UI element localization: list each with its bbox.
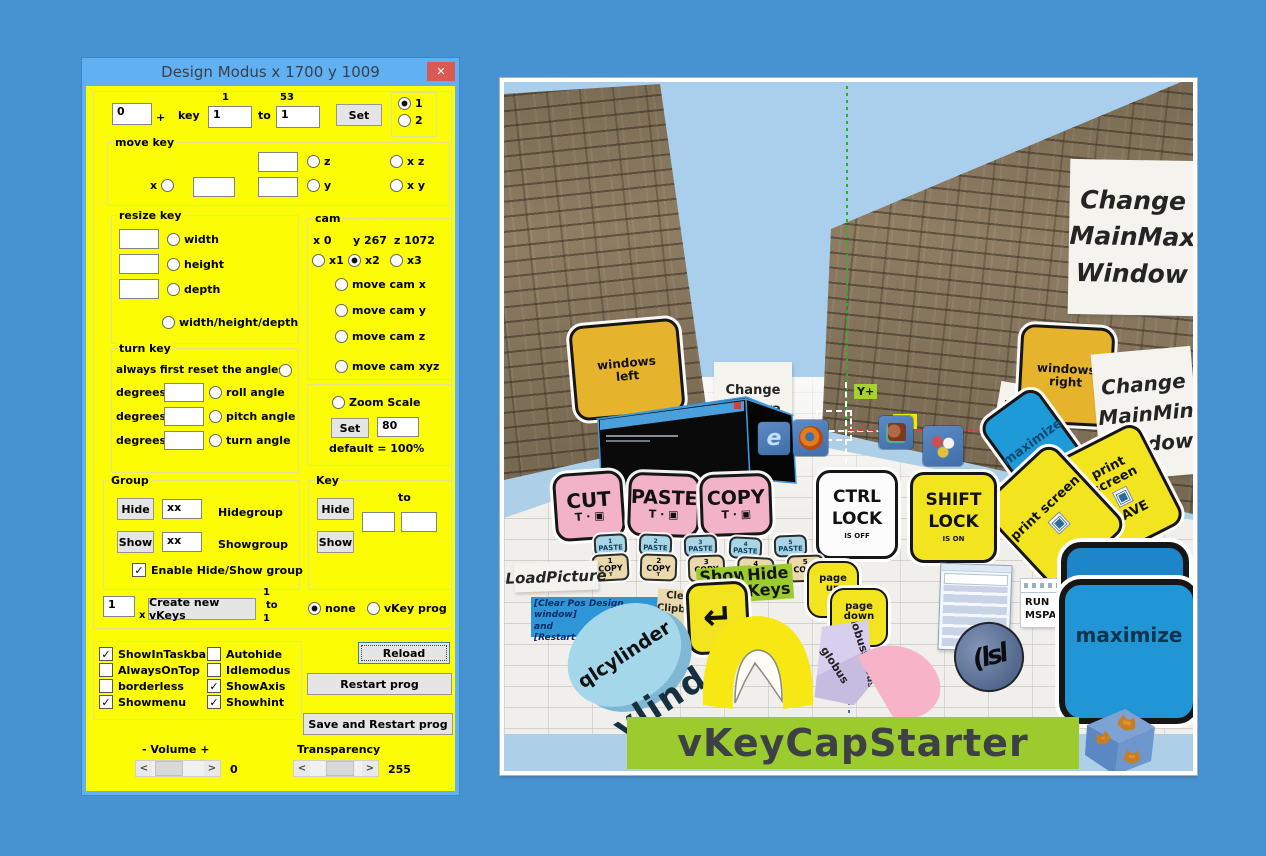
reset-angles-label: always first reset the angles bbox=[116, 364, 284, 376]
degrees-label-3: degrees bbox=[116, 434, 166, 447]
vkey-3d-viewport: Y+ X+ Change MainMax Window windows left… bbox=[500, 78, 1197, 775]
scene[interactable]: Y+ X+ Change MainMax Window windows left… bbox=[504, 82, 1193, 771]
app-cube-2-icon bbox=[929, 432, 957, 460]
resize-depth-input[interactable] bbox=[119, 279, 159, 299]
radio-move-xy[interactable]: x y bbox=[390, 179, 425, 192]
dialog-body: 0 + key 1 1 to 53 1 Set 1 2 move key z x… bbox=[86, 86, 455, 791]
transparency-slider[interactable]: < > bbox=[293, 760, 379, 777]
cam-y-label: y 267 bbox=[353, 234, 387, 247]
create-to-hint: 1 bbox=[263, 613, 270, 624]
zoom-value-input[interactable]: 80 bbox=[377, 417, 419, 437]
cat-cube-key[interactable] bbox=[1079, 705, 1159, 771]
move-z-input[interactable] bbox=[258, 152, 298, 172]
radio-move-xz[interactable]: x z bbox=[390, 155, 424, 168]
radio-move-cam-y[interactable]: move cam y bbox=[335, 304, 426, 317]
create-count-input[interactable]: 1 bbox=[103, 596, 135, 617]
move-x-input[interactable] bbox=[193, 177, 235, 197]
app-cube-1[interactable] bbox=[879, 416, 913, 449]
copy-key[interactable]: COPY T · ▣ bbox=[699, 473, 773, 537]
radio-vkey-prog[interactable]: vKey prog bbox=[367, 602, 447, 615]
hidegroup-button[interactable]: Hide bbox=[117, 498, 154, 520]
key-from-input[interactable]: 1 bbox=[208, 106, 252, 128]
hidegroup-input[interactable]: xx bbox=[162, 499, 202, 519]
restart-prog-button[interactable]: Restart prog bbox=[307, 673, 452, 695]
paste-key[interactable]: PASTE T · ▣ bbox=[627, 472, 701, 538]
vkeycapstarter-banner: vKeyCapStarter bbox=[627, 717, 1079, 769]
radio-cam-x2[interactable]: x2 bbox=[348, 254, 380, 267]
resize-width-input[interactable] bbox=[119, 229, 159, 249]
radio-move-y[interactable]: y bbox=[307, 179, 331, 192]
firefox-cube[interactable] bbox=[793, 420, 828, 456]
radio-move-x[interactable]: x bbox=[150, 179, 174, 192]
transparency-value: 255 bbox=[388, 763, 411, 776]
radio-cam-x3[interactable]: x3 bbox=[390, 254, 422, 267]
cam-title: cam bbox=[313, 212, 342, 225]
move-y-input[interactable] bbox=[258, 177, 298, 197]
radio-depth[interactable]: depth bbox=[167, 283, 220, 296]
turn-key-title: turn key bbox=[117, 342, 173, 355]
load-picture-sign[interactable]: LoadPicture bbox=[514, 561, 599, 593]
radio-height[interactable]: height bbox=[167, 258, 224, 271]
ie-icon: e bbox=[767, 426, 782, 451]
close-icon: ✕ bbox=[436, 65, 445, 78]
checkbox-showaxis[interactable]: ✓ShowAxis bbox=[207, 679, 285, 693]
transparency-right-arrow-icon[interactable]: > bbox=[362, 761, 378, 776]
roll-input[interactable] bbox=[164, 383, 204, 402]
degrees-label-1: degrees bbox=[116, 386, 166, 399]
checkbox-showintaskbar[interactable]: ✓ShowInTaskbar bbox=[99, 647, 212, 661]
checkbox-autohide[interactable]: Autohide bbox=[207, 647, 282, 661]
reload-button[interactable]: Reload bbox=[358, 642, 450, 664]
volume-value: 0 bbox=[230, 763, 238, 776]
radio-mode-2[interactable]: 2 bbox=[398, 114, 423, 127]
key-from-hint: 1 bbox=[222, 92, 229, 103]
radio-cam-x1[interactable]: x1 bbox=[312, 254, 344, 267]
pink-wedge-key[interactable] bbox=[852, 635, 948, 721]
turn-input[interactable] bbox=[164, 431, 204, 450]
checkbox-alwaysontop[interactable]: AlwaysOnTop bbox=[99, 663, 200, 677]
radio-move-cam-z[interactable]: move cam z bbox=[335, 330, 425, 343]
radio-zoom-scale[interactable]: Zoom Scale bbox=[332, 396, 420, 409]
transparency-left-arrow-icon[interactable]: < bbox=[294, 761, 310, 776]
radio-mode-1[interactable]: 1 bbox=[398, 97, 423, 110]
radio-turn[interactable]: turn angle bbox=[209, 434, 291, 447]
degrees-label-2: degrees bbox=[116, 410, 166, 423]
cut-key[interactable]: CUT T · ▣ bbox=[552, 470, 627, 543]
resize-height-input[interactable] bbox=[119, 254, 159, 274]
create-from-hint: 1 bbox=[263, 587, 270, 598]
key-hide-button[interactable]: Hide bbox=[317, 498, 354, 520]
resize-key-title: resize key bbox=[117, 209, 184, 222]
zoom-default-label: default = 100% bbox=[329, 442, 424, 455]
key-range-to-input[interactable] bbox=[401, 512, 437, 532]
showgroup-button[interactable]: Show bbox=[117, 531, 154, 553]
ctrl-lock-key[interactable]: CTRL LOCK IS OFF bbox=[816, 470, 898, 559]
to-label: to bbox=[258, 109, 271, 122]
volume-label: - Volume + bbox=[142, 743, 209, 756]
key-range-from-input[interactable] bbox=[362, 512, 395, 532]
app-cube-1-icon bbox=[886, 423, 906, 443]
center-guide-line bbox=[846, 82, 848, 432]
hide-keys-label[interactable]: Hide Keys bbox=[743, 563, 794, 601]
transparency-label: Transparency bbox=[297, 743, 380, 756]
radio-width[interactable]: width bbox=[167, 233, 219, 246]
design-modus-window: Design Modus x 1700 y 1009 ✕ 0 + key 1 1… bbox=[82, 58, 459, 795]
window-title: Design Modus x 1700 y 1009 bbox=[161, 63, 380, 81]
ie-cube[interactable]: e bbox=[758, 422, 790, 455]
firefox-icon bbox=[799, 426, 823, 450]
plus-label: + bbox=[156, 111, 165, 124]
showgroup-label: Showgroup bbox=[218, 538, 288, 551]
volume-thumb[interactable] bbox=[155, 761, 183, 776]
create-to-label: to bbox=[266, 600, 278, 611]
key-to-label: to bbox=[398, 491, 411, 504]
radio-reset-angles[interactable] bbox=[279, 364, 292, 377]
checkbox-showmenu[interactable]: ✓Showmenu bbox=[99, 695, 186, 709]
volume-left-arrow-icon[interactable]: < bbox=[136, 761, 152, 776]
volume-right-arrow-icon[interactable]: > bbox=[204, 761, 220, 776]
create-vkeys-button[interactable]: Create new vKeys bbox=[148, 598, 256, 620]
key-to-hint: 53 bbox=[280, 92, 294, 103]
radio-move-z[interactable]: z bbox=[307, 155, 330, 168]
enable-hideshow-checkbox[interactable]: ✓Enable Hide/Show group bbox=[132, 563, 303, 577]
y-plus-badge: Y+ bbox=[854, 384, 877, 399]
pitch-input[interactable] bbox=[164, 407, 204, 426]
key-label: key bbox=[178, 109, 200, 122]
zoom-set-button[interactable]: Set bbox=[331, 418, 369, 438]
radio-move-cam-xyz[interactable]: move cam xyz bbox=[335, 360, 439, 373]
move-key-title: move key bbox=[113, 136, 176, 149]
desktop: Design Modus x 1700 y 1009 ✕ 0 + key 1 1… bbox=[0, 0, 1266, 856]
close-button[interactable]: ✕ bbox=[427, 62, 455, 81]
maximize-big-key[interactable]: maximize bbox=[1059, 579, 1193, 724]
change-mainmax-sign[interactable]: Change MainMax Window bbox=[1068, 159, 1193, 316]
key-title: Key bbox=[314, 474, 341, 487]
radio-whd[interactable]: width/height/depth bbox=[162, 316, 298, 329]
offset-input[interactable]: 0 bbox=[112, 103, 152, 125]
key-to-input[interactable]: 1 bbox=[276, 106, 320, 128]
hidegroup-label: Hidegroup bbox=[218, 506, 283, 519]
radio-pitch[interactable]: pitch angle bbox=[209, 410, 295, 423]
group-title: Group bbox=[109, 474, 151, 487]
shift-lock-key[interactable]: SHIFT LOCK IS ON bbox=[910, 472, 997, 563]
checkbox-showhint[interactable]: ✓Showhint bbox=[207, 695, 284, 709]
radio-none[interactable]: none bbox=[308, 602, 356, 615]
app-cube-2[interactable] bbox=[923, 426, 963, 466]
cam-z-label: z 1072 bbox=[394, 234, 435, 247]
save-restart-button[interactable]: Save and Restart prog bbox=[303, 713, 453, 735]
checkbox-idlemodus[interactable]: Idlemodus bbox=[207, 663, 290, 677]
create-x-label: x bbox=[139, 610, 145, 621]
radio-move-cam-x[interactable]: move cam x bbox=[335, 278, 426, 291]
title-bar[interactable]: Design Modus x 1700 y 1009 ✕ bbox=[82, 58, 459, 86]
volume-slider[interactable]: < > bbox=[135, 760, 221, 777]
cam-x-label: x 0 bbox=[313, 234, 332, 247]
arch-key[interactable] bbox=[697, 607, 821, 711]
key-show-button[interactable]: Show bbox=[317, 531, 354, 553]
print-screen-icon-2: ▣ bbox=[1047, 511, 1070, 534]
radio-roll[interactable]: roll angle bbox=[209, 386, 285, 399]
set-button[interactable]: Set bbox=[336, 104, 382, 126]
copy-2-key[interactable]: 2COPYT bbox=[640, 553, 678, 581]
checkbox-borderless[interactable]: borderless bbox=[99, 679, 184, 693]
transparency-thumb[interactable] bbox=[326, 761, 354, 776]
showgroup-input[interactable]: xx bbox=[162, 532, 202, 552]
